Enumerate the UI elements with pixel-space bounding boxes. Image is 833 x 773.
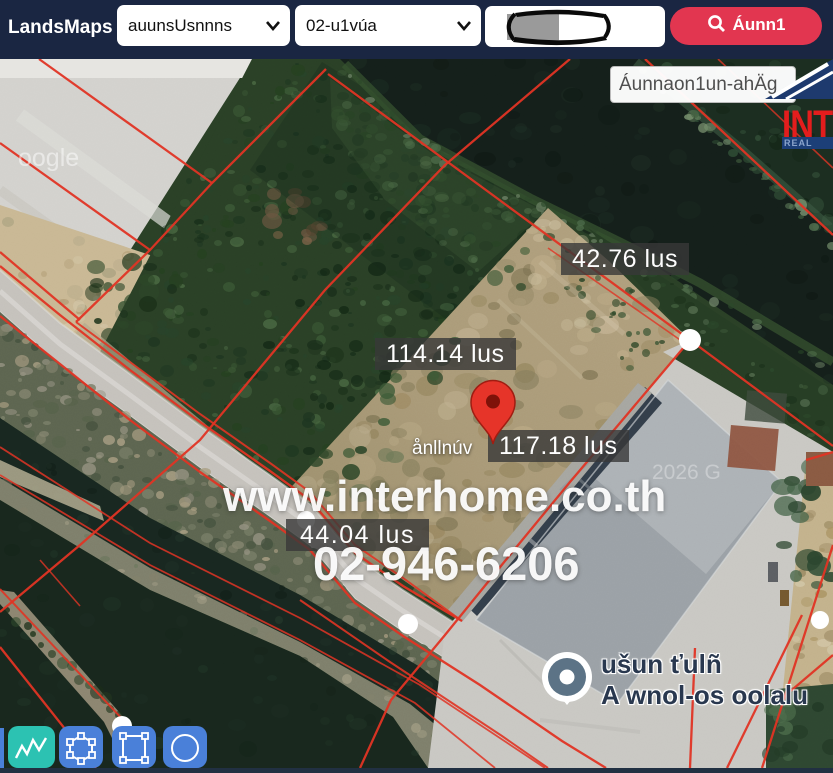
svg-text:oogle: oogle xyxy=(18,144,79,172)
